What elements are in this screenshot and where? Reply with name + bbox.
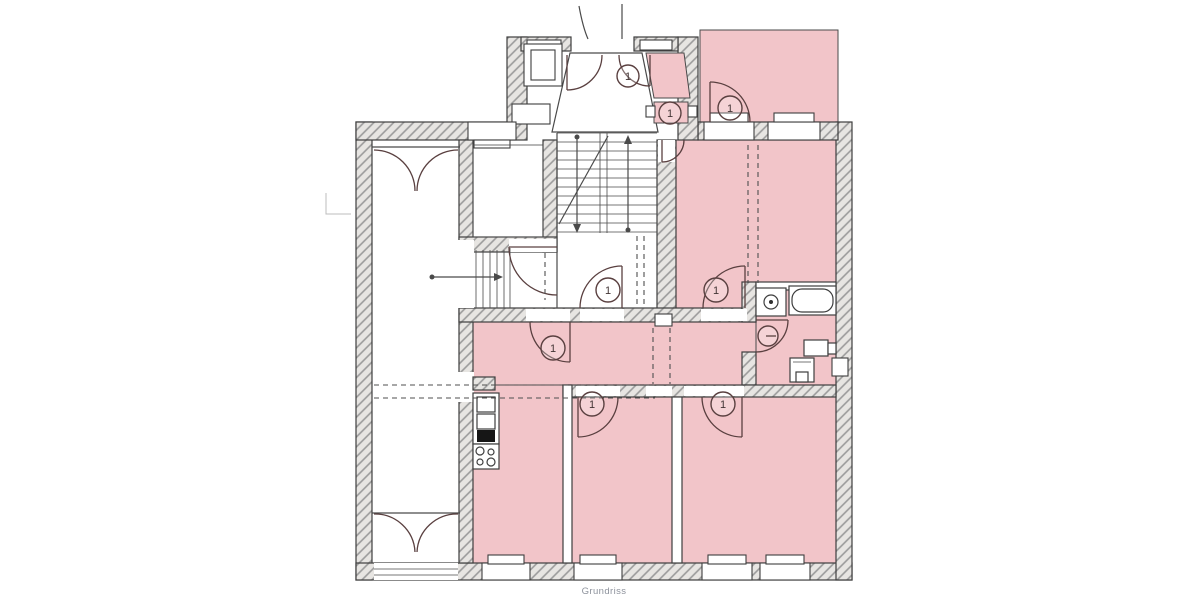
- opening-left-room-bottom: [374, 563, 458, 580]
- window: [702, 555, 752, 580]
- window: [574, 555, 622, 580]
- hinge-block: [688, 106, 697, 117]
- window: [768, 113, 820, 140]
- svg-text:1: 1: [550, 343, 556, 355]
- svg-text:1: 1: [589, 399, 595, 411]
- opening-chimney-bottom: [646, 386, 672, 396]
- room-bottom-middle: [563, 385, 672, 563]
- wall-small-room-right: [543, 140, 557, 252]
- svg-text:1: 1: [625, 71, 631, 83]
- bathroom-door-marker: [758, 326, 778, 346]
- bathtub: [789, 286, 836, 315]
- window: [760, 555, 810, 580]
- vestibule-niche-inner: [531, 50, 555, 80]
- opening-rightroom-door: [684, 386, 744, 396]
- plan-caption: Grundriss: [582, 586, 627, 597]
- window: [482, 555, 530, 580]
- washing-machine: [756, 288, 786, 316]
- door-label: 1: [659, 102, 681, 124]
- opening-basement-passage: [458, 240, 474, 308]
- wall-kitchen-midroom: [563, 385, 572, 563]
- svg-text:1: 1: [667, 108, 673, 120]
- door-label: 1: [704, 278, 728, 302]
- niche-vestibule-right: [640, 40, 672, 50]
- wall-midroom-rightroom: [672, 397, 682, 563]
- svg-text:1: 1: [605, 285, 611, 297]
- arrow-start-dot: [430, 275, 435, 280]
- niche-right-wall: [832, 358, 848, 376]
- door-label: 1: [718, 96, 742, 120]
- svg-text:1: 1: [713, 285, 719, 297]
- pier-hall: [655, 314, 672, 326]
- room-bottom-right: [672, 385, 836, 563]
- arrow-start-dot: [575, 135, 580, 140]
- opening-hall-door: [526, 309, 570, 321]
- door-label: 1: [596, 278, 620, 302]
- door-label: 1: [541, 336, 565, 360]
- svg-text:1: 1: [720, 399, 726, 411]
- room-hallway: [459, 322, 756, 385]
- door-label: 1: [711, 392, 735, 416]
- door-label: 1: [580, 392, 604, 416]
- wall-kitchen-left: [459, 308, 473, 563]
- toilet: [790, 358, 814, 382]
- wall-small-room-left: [459, 140, 473, 240]
- wall-bathroom-left-lower: [742, 352, 756, 385]
- pier-vestibule-left: [512, 104, 550, 124]
- svg-text:1: 1: [727, 103, 733, 115]
- hinge-block: [646, 106, 655, 117]
- door-label: 1: [617, 65, 639, 87]
- opening-cellar-door: [509, 239, 557, 252]
- opening-upper-right-door: [701, 309, 747, 321]
- scanned-floor-plan-page: 1 1 1 1 1 1 1 1 Grundriss: [0, 0, 1200, 600]
- wall-stub-kitchen: [473, 377, 495, 390]
- opening-stairhall-door: [580, 309, 624, 321]
- wall-outer-right: [836, 122, 852, 580]
- kitchen-unit: [473, 393, 499, 444]
- entrance-ramp: [646, 53, 690, 98]
- arrow-start-dot: [626, 228, 631, 233]
- window: [468, 122, 516, 148]
- floor-plan-svg: 1 1 1 1 1 1 1 1 Grundriss: [0, 0, 1200, 600]
- wall-stairwell-right: [657, 140, 676, 316]
- wall-outer-left: [356, 122, 372, 580]
- stove: [473, 444, 499, 469]
